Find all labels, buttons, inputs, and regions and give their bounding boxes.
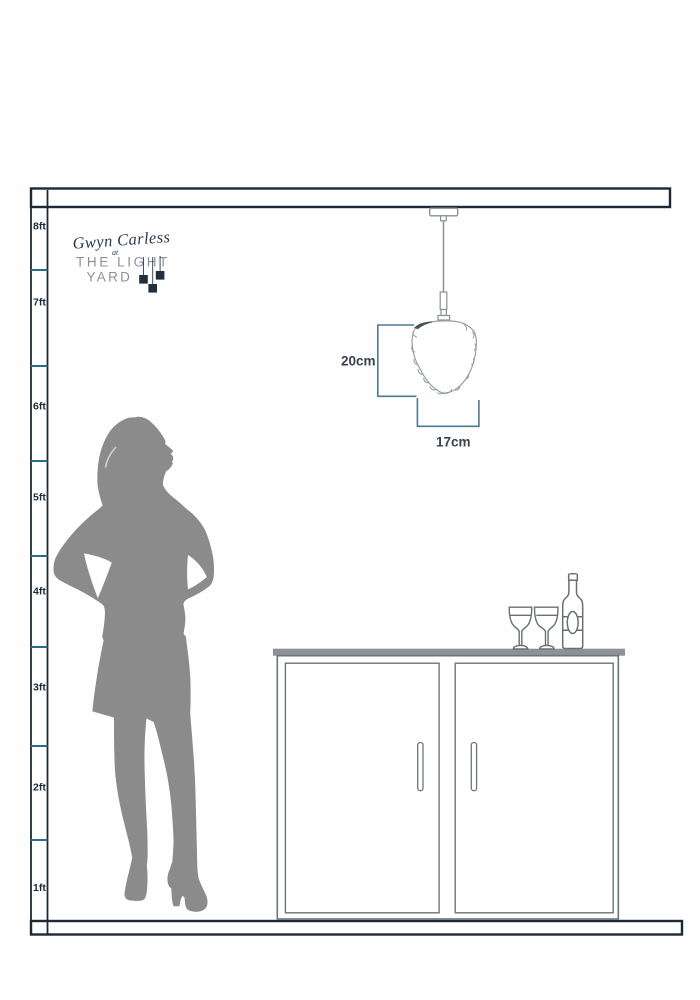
svg-text:2ft: 2ft — [33, 782, 46, 794]
svg-text:YARD: YARD — [87, 270, 133, 285]
svg-text:5ft: 5ft — [33, 492, 46, 504]
svg-text:3ft: 3ft — [33, 682, 46, 694]
svg-text:20cm: 20cm — [341, 354, 376, 369]
svg-text:7ft: 7ft — [33, 297, 46, 309]
svg-text:Gwyn Carless: Gwyn Carless — [72, 227, 171, 253]
svg-text:THE LIGHT: THE LIGHT — [76, 255, 170, 270]
svg-text:17cm: 17cm — [436, 435, 471, 450]
svg-text:4ft: 4ft — [33, 586, 46, 598]
svg-text:1ft: 1ft — [33, 882, 46, 894]
svg-text:8ft: 8ft — [33, 221, 46, 233]
svg-text:6ft: 6ft — [33, 401, 46, 413]
